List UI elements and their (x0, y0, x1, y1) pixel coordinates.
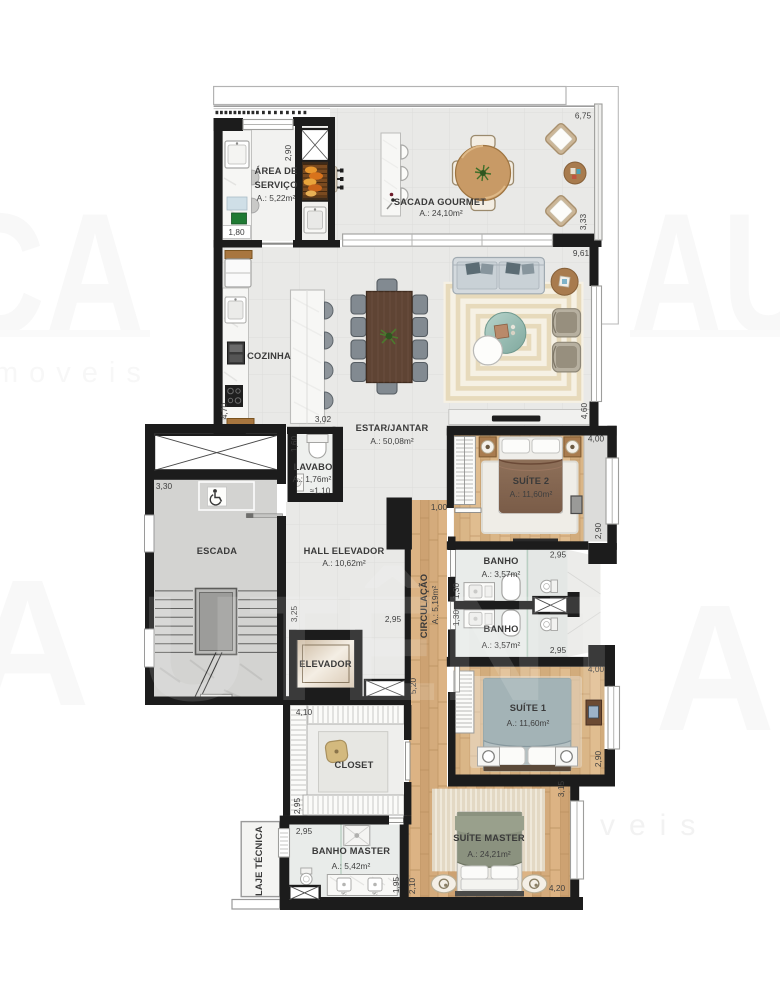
svg-text:WC: WC (372, 892, 378, 896)
svg-text:A.: 50,08m²: A.: 50,08m² (370, 436, 414, 446)
svg-text:2,90: 2,90 (593, 751, 603, 768)
svg-text:2,90: 2,90 (593, 523, 603, 540)
svg-text:3,15: 3,15 (556, 781, 566, 798)
svg-text:A: A (655, 568, 775, 769)
svg-text:1,60: 1,60 (289, 436, 299, 453)
svg-text:4,00: 4,00 (588, 434, 605, 444)
svg-text:LAVABO: LAVABO (293, 462, 332, 472)
svg-text:4,20: 4,20 (549, 883, 566, 893)
svg-text:4,70: 4,70 (219, 403, 229, 420)
svg-text:A.: 11,60m²: A.: 11,60m² (510, 489, 553, 499)
svg-text:CA: CA (0, 178, 145, 370)
svg-text:≈1,10: ≈1,10 (310, 486, 331, 496)
svg-text:2,95: 2,95 (296, 826, 313, 836)
svg-text:WC: WC (341, 892, 347, 896)
svg-text:A.: 1,76m²: A.: 1,76m² (293, 474, 332, 484)
svg-text:SACADA GOURMET: SACADA GOURMET (394, 197, 486, 207)
svg-text:SUÍTE 2: SUÍTE 2 (513, 476, 550, 486)
svg-text:2,95: 2,95 (292, 798, 302, 815)
svg-text:BANHO MASTER: BANHO MASTER (312, 846, 390, 856)
svg-text:AU: AU (630, 178, 780, 370)
svg-text:3,30: 3,30 (156, 481, 173, 491)
svg-text:moveis: moveis (0, 357, 152, 389)
svg-text:UTÊNT: UTÊNT (140, 564, 640, 732)
svg-text:A.: 24,10m²: A.: 24,10m² (419, 208, 463, 218)
svg-text:A.: 5,42m²: A.: 5,42m² (332, 861, 371, 871)
svg-text:6,75: 6,75 (575, 111, 592, 121)
svg-text:LAJE TÉCNICA: LAJE TÉCNICA (254, 826, 264, 896)
svg-text:veis: veis (600, 809, 709, 842)
svg-text:CLOSET: CLOSET (335, 760, 374, 770)
svg-text:2,90: 2,90 (283, 145, 293, 162)
svg-text:4,60: 4,60 (579, 403, 589, 420)
svg-text:2,95: 2,95 (550, 550, 567, 560)
svg-text:A: A (0, 543, 90, 744)
svg-text:A.: 24,21m²: A.: 24,21m² (467, 849, 511, 859)
svg-text:COZINHA: COZINHA (247, 351, 291, 361)
svg-text:3,02: 3,02 (315, 414, 332, 424)
svg-text:ESCADA: ESCADA (197, 546, 238, 556)
svg-text:9,61: 9,61 (573, 248, 590, 258)
svg-text:2,10: 2,10 (407, 878, 417, 895)
svg-text:3,33: 3,33 (578, 214, 588, 231)
svg-text:1,00: 1,00 (431, 502, 448, 512)
svg-text:HALL ELEVADOR: HALL ELEVADOR (304, 546, 385, 556)
svg-text:SUÍTE MASTER: SUÍTE MASTER (453, 833, 525, 843)
svg-text:A.: 5,22m²: A.: 5,22m² (257, 193, 296, 203)
svg-text:ESTAR/JANTAR: ESTAR/JANTAR (356, 423, 429, 433)
svg-text:ÁREA DE: ÁREA DE (255, 166, 298, 176)
svg-text:SERVIÇO: SERVIÇO (254, 180, 297, 190)
svg-text:1,80: 1,80 (228, 227, 245, 237)
svg-text:1,95: 1,95 (391, 877, 401, 894)
